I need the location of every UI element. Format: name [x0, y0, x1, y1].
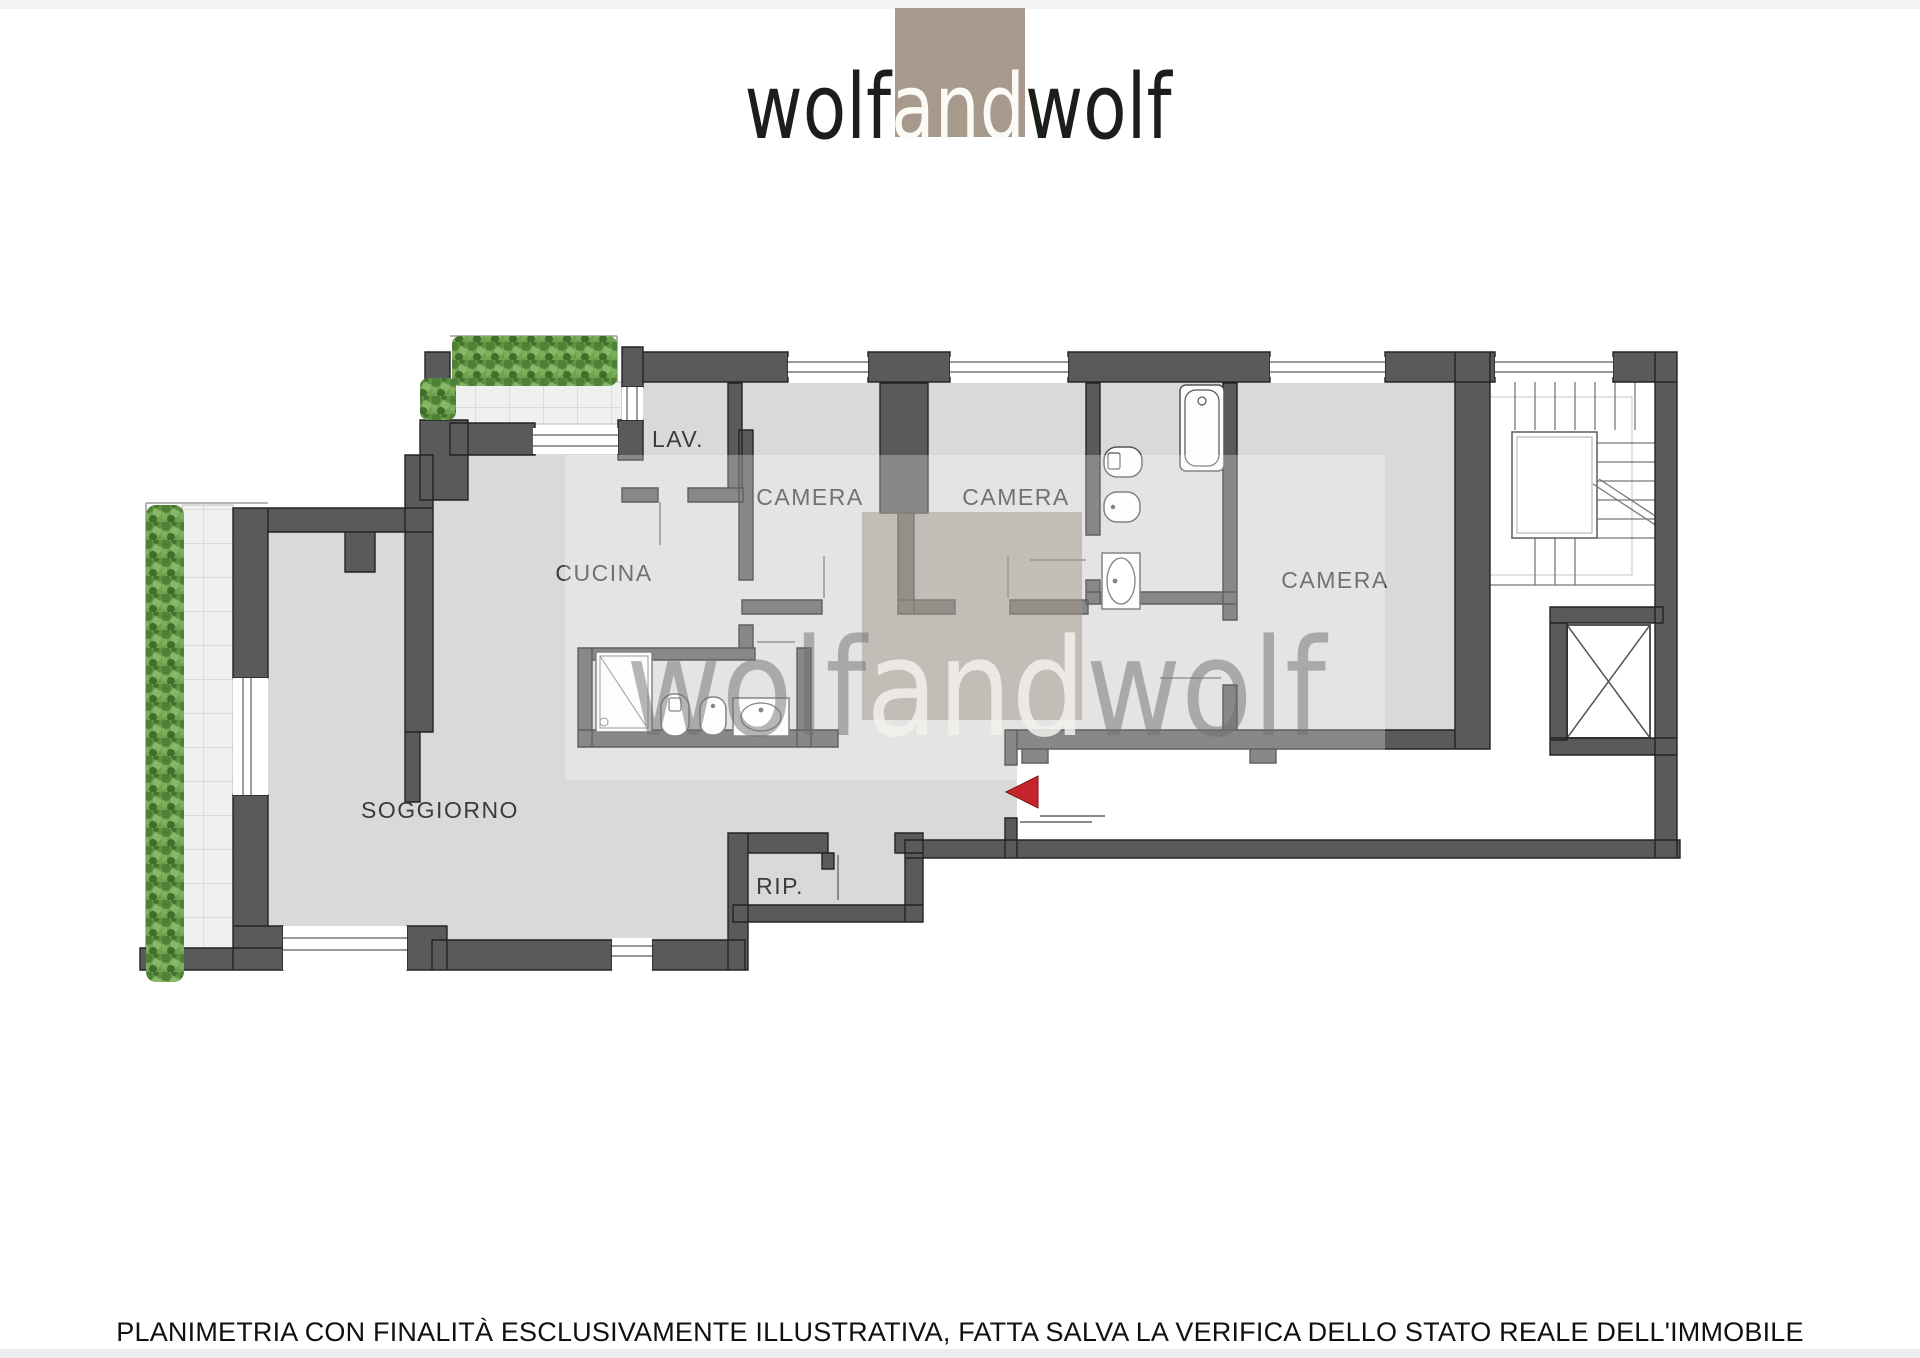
floor-plan-page: wolfandwolf	[0, 0, 1920, 1358]
logo-wordmark: wolfandwolf	[745, 55, 1174, 160]
floor-plan-image: wolfandwolf	[0, 0, 1920, 1358]
stair-landing	[1512, 432, 1597, 538]
watermark-word-1: wolf	[626, 610, 869, 767]
disclaimer-text: PLANIMETRIA CON FINALITÀ ESCLUSIVAMENTE …	[116, 1317, 1803, 1347]
watermark-wordmark: wolfandwolf	[626, 610, 1329, 767]
room-label-soggiorno: SOGGIORNO	[361, 797, 519, 823]
logo-word-1: wolf	[745, 55, 893, 160]
watermark-word-3: wolf	[1086, 610, 1329, 767]
watermark-word-2: and	[866, 610, 1085, 767]
header-logo: wolfandwolf	[745, 8, 1174, 160]
top-strip	[0, 0, 1920, 9]
logo-word-2: and	[891, 55, 1025, 160]
room-label-rip: RIP.	[756, 873, 804, 899]
stairwell	[1469, 382, 1666, 585]
elevator-icon	[1567, 625, 1650, 738]
logo-word-3: wolf	[1025, 55, 1173, 160]
room-label-lav: LAV.	[652, 426, 704, 452]
watermark: wolfandwolf	[565, 455, 1385, 780]
bottom-strip	[0, 1349, 1920, 1358]
